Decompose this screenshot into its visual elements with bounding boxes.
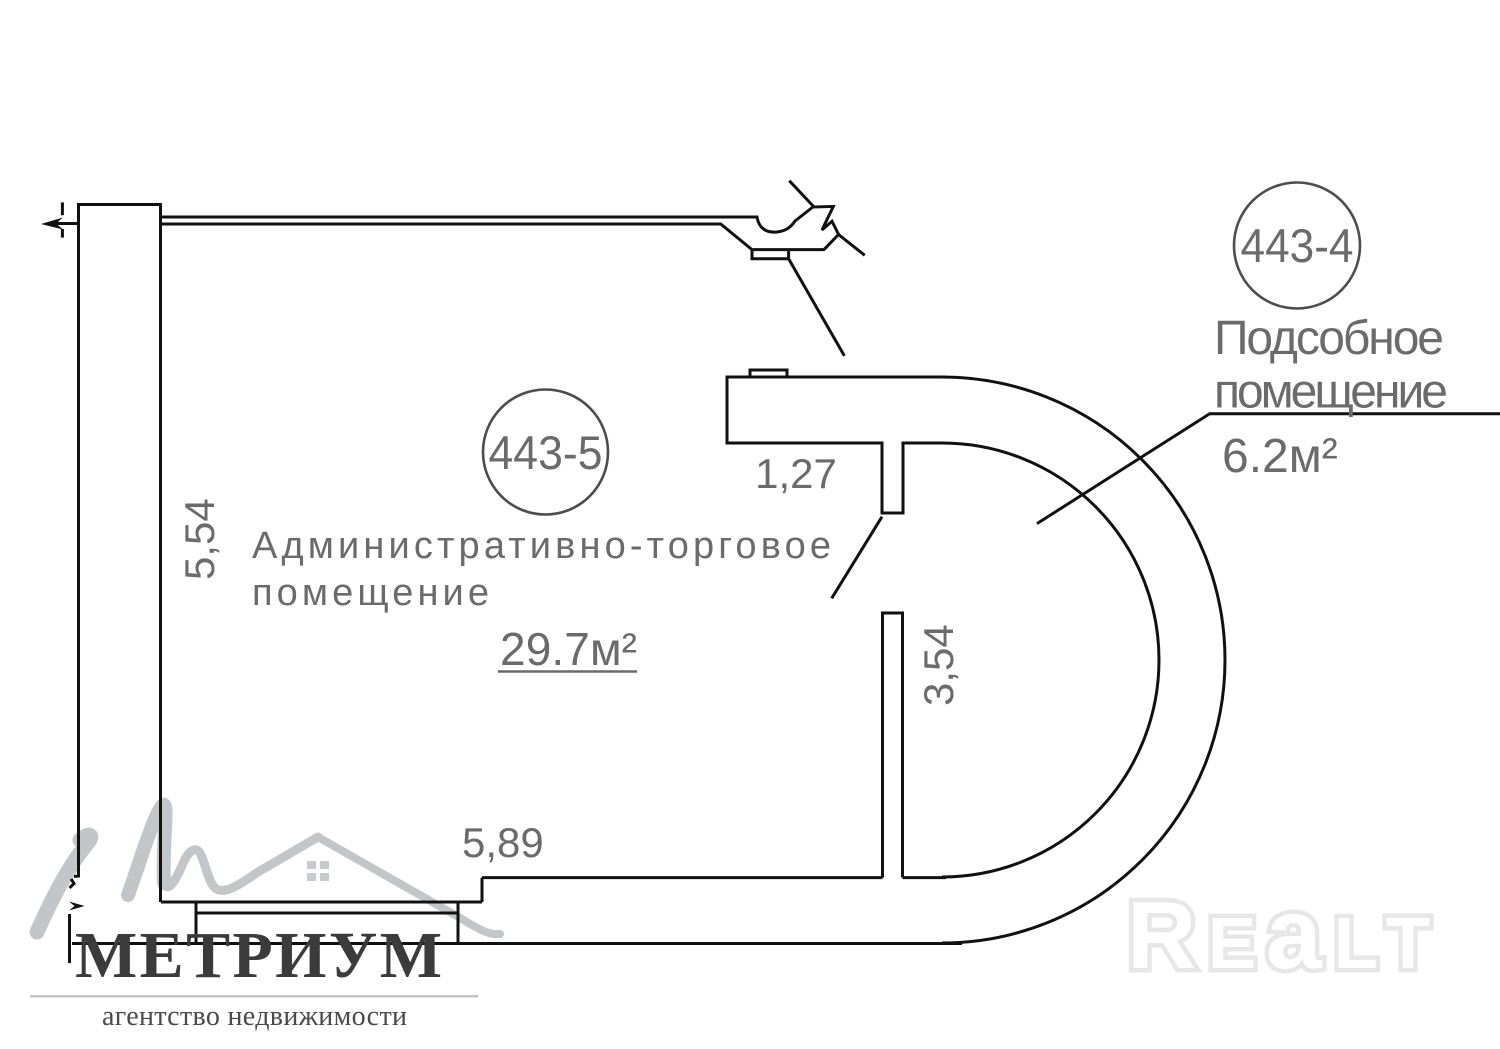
svg-text:6.2м²: 6.2м² [1222,430,1338,483]
svg-text:5,89: 5,89 [462,819,544,866]
svg-text:5,54: 5,54 [176,498,223,580]
svg-text:29.7м²: 29.7м² [500,623,637,675]
svg-text:443-4: 443-4 [1241,219,1354,272]
svg-text:1,27: 1,27 [755,450,837,497]
svg-text:МЕТРИУМ: МЕТРИУМ [75,919,442,992]
svg-text:443-5: 443-5 [489,426,603,479]
svg-text:3,54: 3,54 [915,624,962,706]
svg-text:Административно-торговое: Административно-торговое [252,525,831,567]
svg-text:агентство недвижимости: агентство недвижимости [102,1001,407,1032]
svg-text:помещение: помещение [1214,366,1448,419]
svg-text:T: T [1386,904,1430,984]
svg-text:R: R [1127,882,1196,989]
svg-text:Подсобное: Подсобное [1214,312,1444,365]
svg-text:помещение: помещение [252,572,489,614]
svg-text:L: L [1334,904,1378,984]
svg-text:E: E [1208,904,1256,984]
svg-text:a: a [1266,878,1323,990]
